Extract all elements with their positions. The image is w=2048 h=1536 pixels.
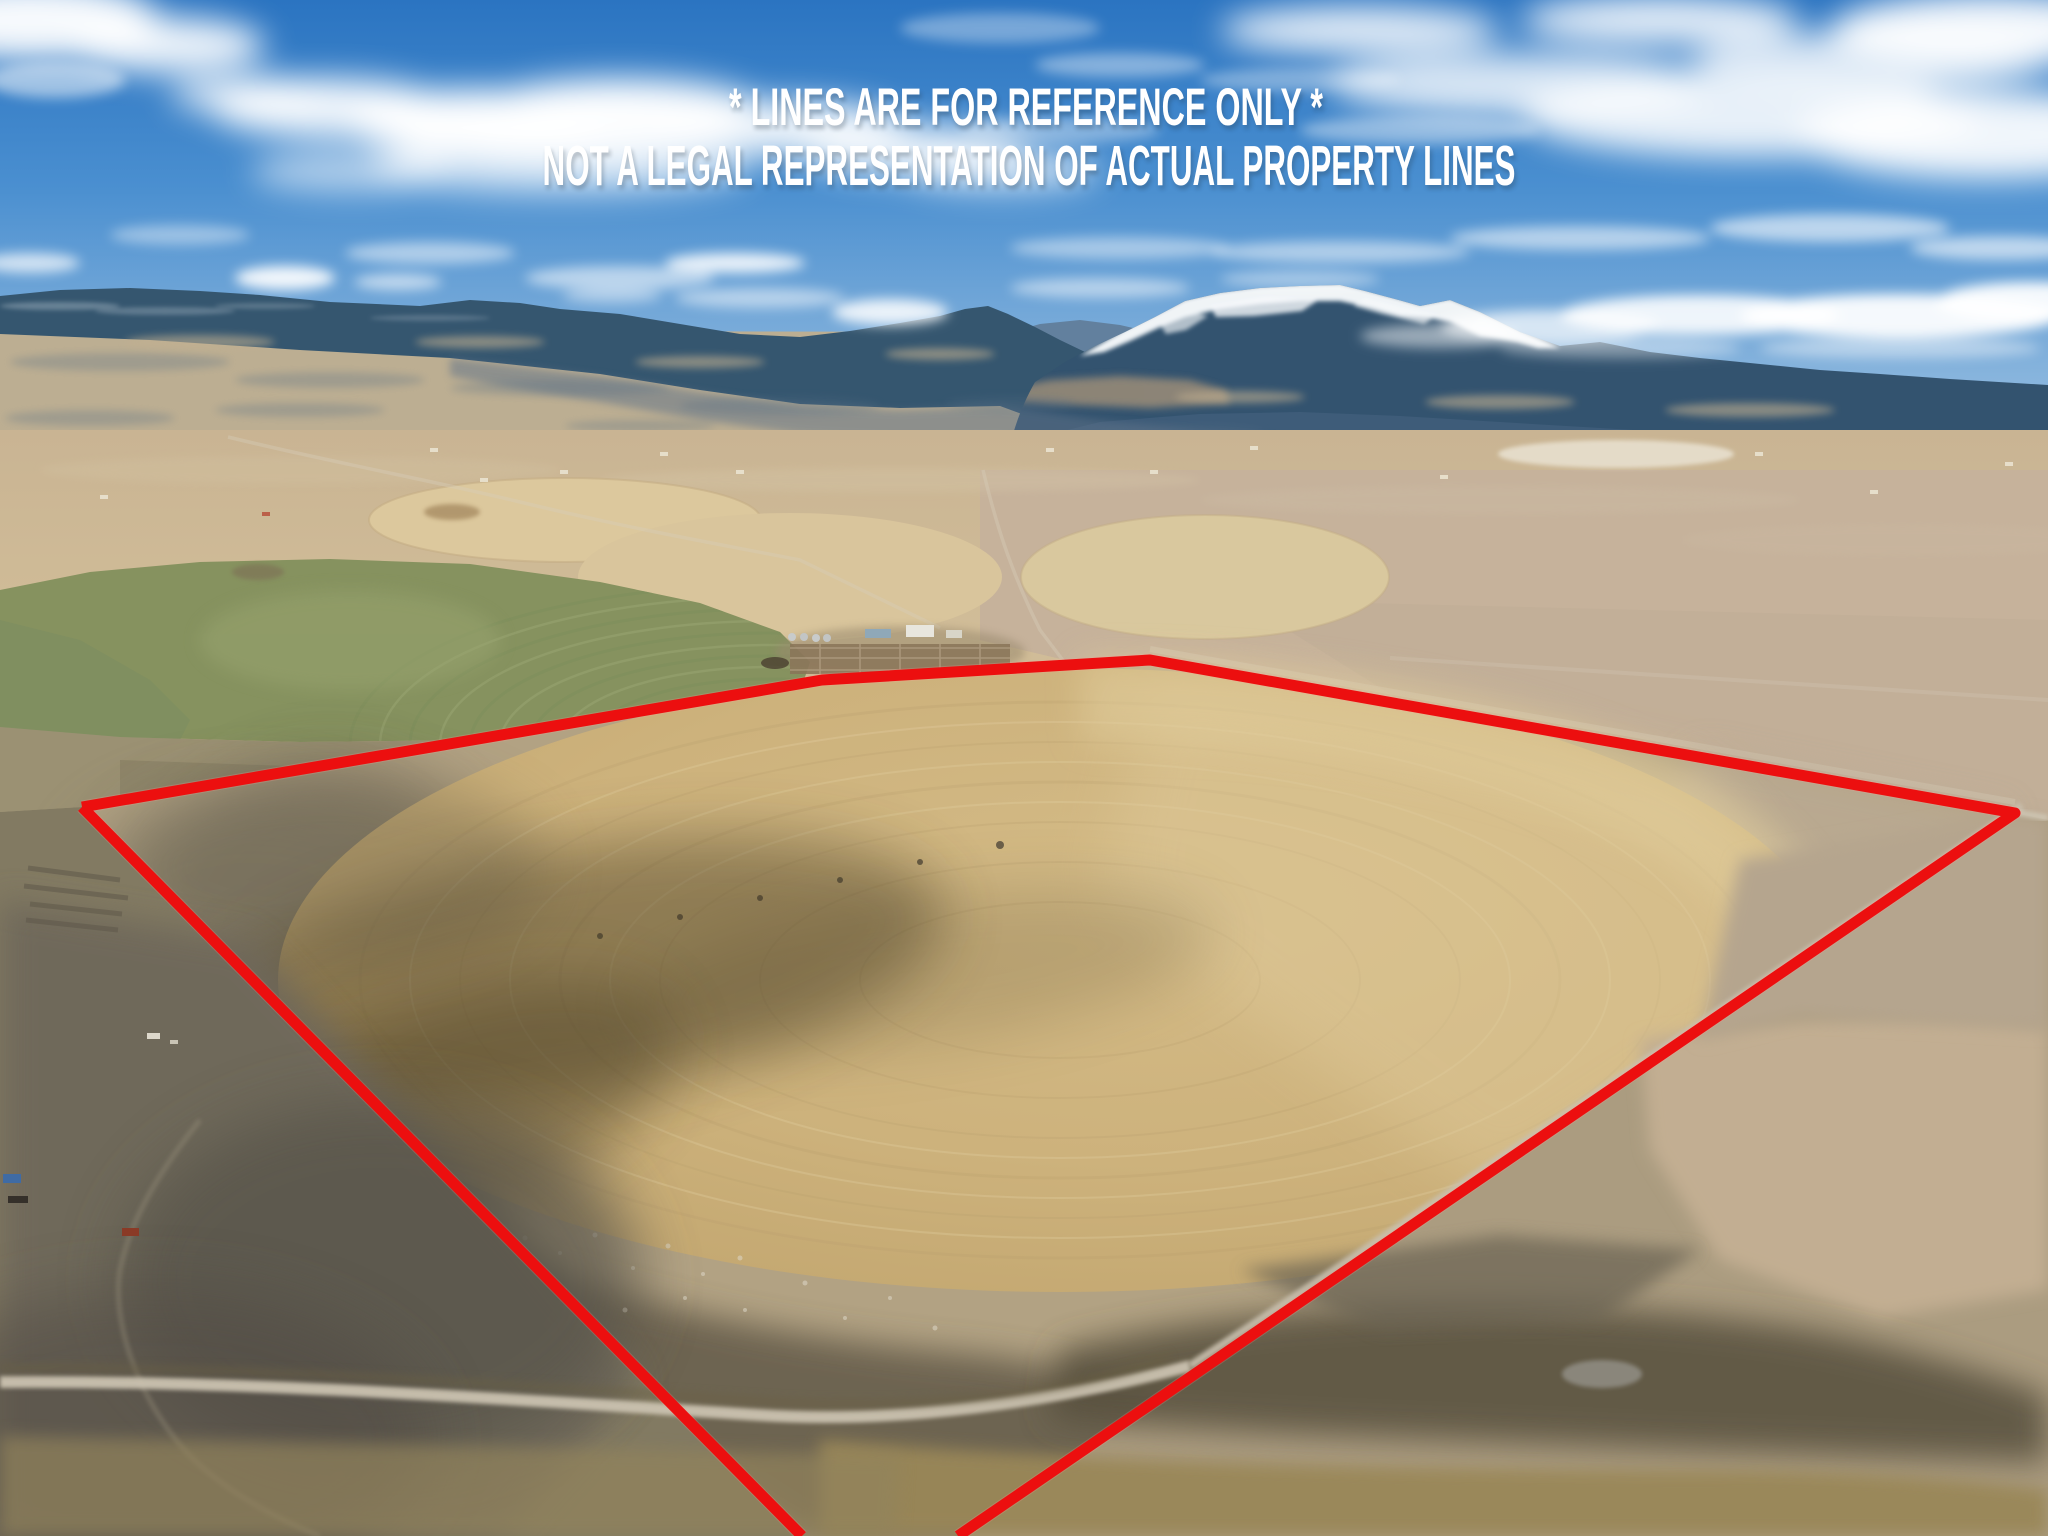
- svg-text:* LINES ARE FOR REFERENCE ONLY: * LINES ARE FOR REFERENCE ONLY *: [729, 79, 1323, 137]
- svg-text:NOT A LEGAL REPRESENTATION OF: NOT A LEGAL REPRESENTATION OF ACTUAL PRO…: [543, 133, 1516, 197]
